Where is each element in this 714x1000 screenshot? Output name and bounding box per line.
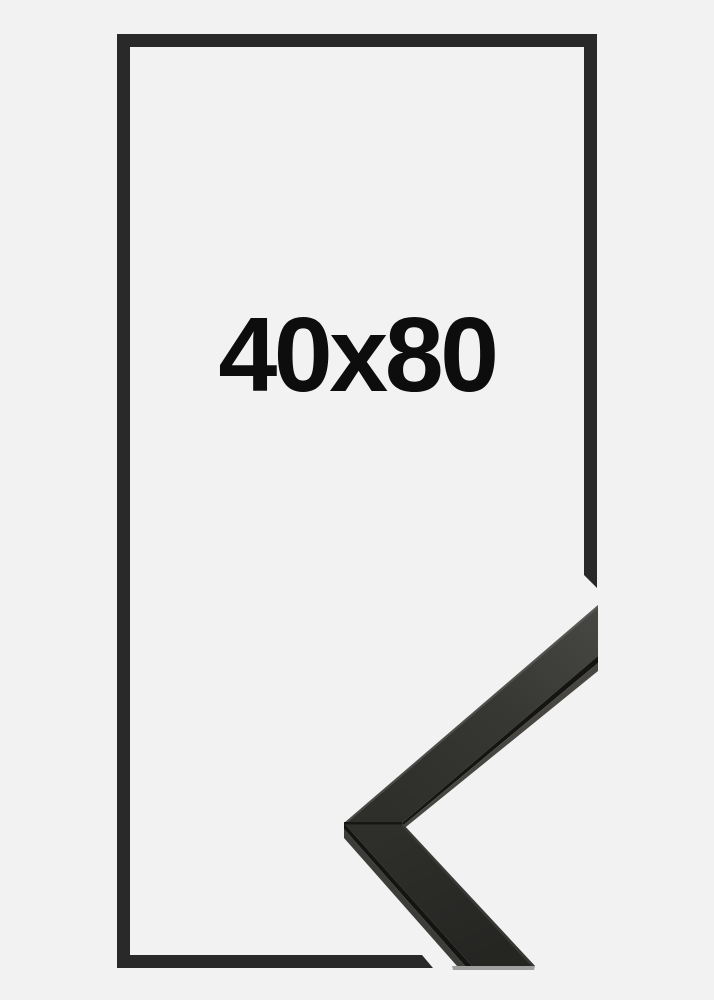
product-image: 40x80: [0, 0, 714, 1000]
frame-graphic: [0, 0, 714, 1000]
sample-bottom-strip: [452, 966, 535, 970]
sample-miter-seam: [344, 822, 402, 825]
frame-outline-top: [117, 34, 597, 47]
frame-outline-bottom: [117, 955, 433, 968]
size-label: 40x80: [0, 302, 714, 408]
frame-outline-left: [117, 34, 130, 968]
